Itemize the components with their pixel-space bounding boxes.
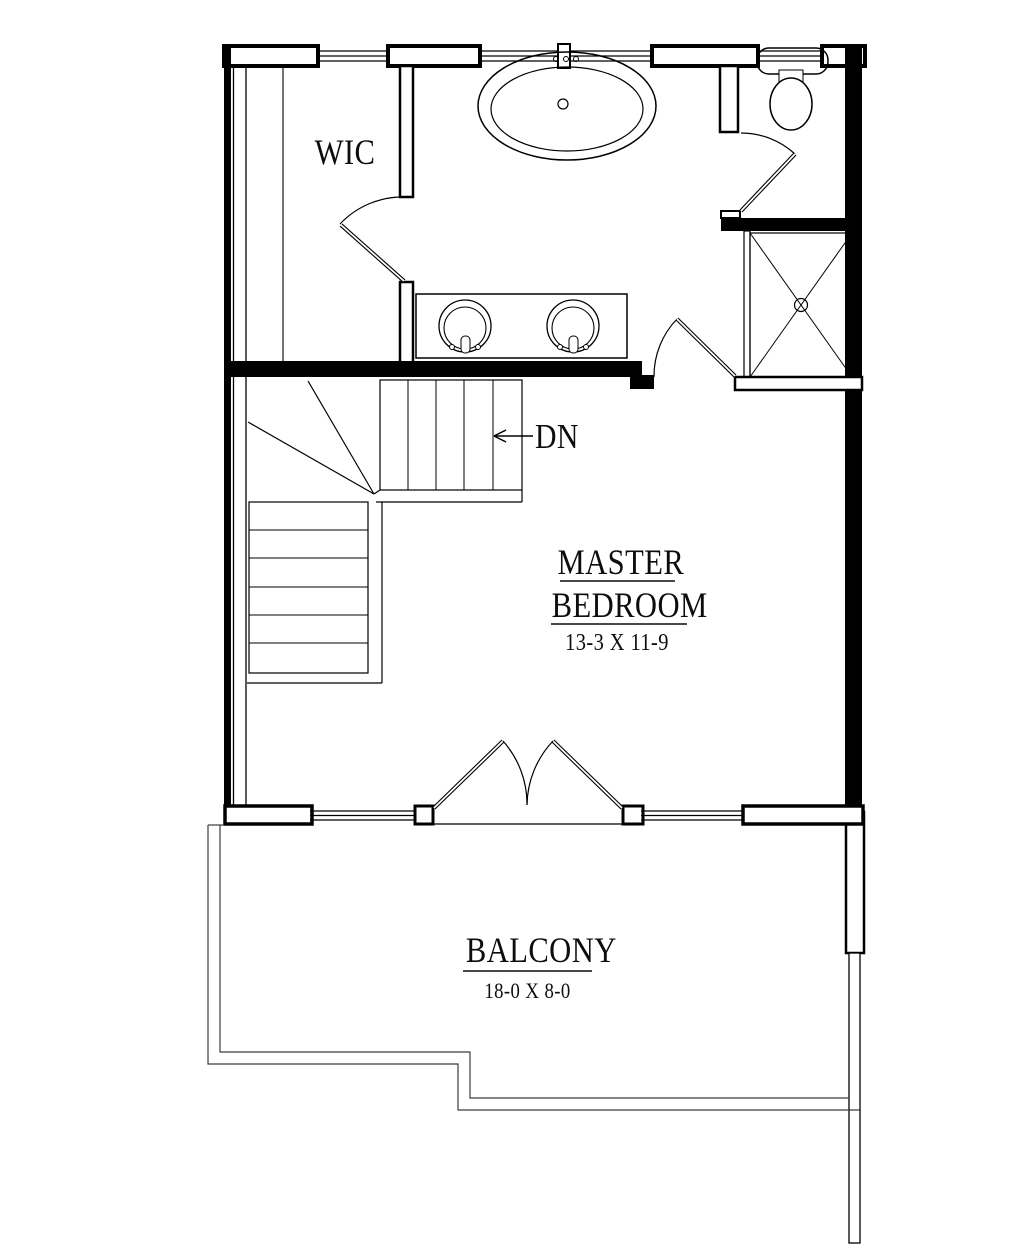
floor-plan: WIC DN MASTER BEDROOM 13-3 X 11-9 BALCON… — [0, 0, 1023, 1245]
fixtures — [416, 48, 852, 377]
floor-plan-linework — [0, 0, 1023, 1245]
window-mullion — [558, 44, 570, 68]
shower-icon — [744, 231, 852, 377]
balcony-label: BALCONY — [466, 932, 589, 968]
window-bottom-2 — [641, 811, 745, 820]
wic-wall-lower — [400, 282, 413, 363]
master-bedroom-dimensions: 13-3 X 11-9 — [558, 631, 677, 655]
balcony-dimensions: 18-0 X 8-0 — [466, 980, 589, 1002]
main-divider-wall — [224, 361, 642, 377]
window-bottom-1 — [310, 811, 417, 820]
master-bedroom-label-line2: BEDROOM — [552, 587, 684, 623]
vanity-icon — [416, 294, 627, 358]
french-doors — [434, 741, 622, 808]
shower-bottom-wall — [735, 377, 862, 390]
sink-right-icon — [547, 300, 599, 353]
sink-left-icon — [439, 300, 491, 353]
window-top-1 — [316, 51, 390, 61]
wic-room-label: WIC — [303, 134, 388, 170]
toilet-shower-wall — [721, 218, 862, 231]
staircase — [247, 380, 533, 683]
toilet-door-jamb — [721, 211, 740, 218]
wic-door — [340, 197, 404, 281]
toilet-icon — [757, 48, 828, 130]
toilet-door — [741, 133, 795, 211]
window-top-3 — [756, 51, 824, 61]
wic-wall-upper — [400, 66, 413, 197]
master-bedroom-label-line1: MASTER — [558, 544, 677, 580]
interior-walls — [224, 66, 862, 390]
toilet-room-wall — [720, 66, 738, 132]
stair-direction-label: DN — [535, 419, 579, 454]
divider-jog — [630, 375, 654, 389]
bathroom-door — [654, 319, 735, 377]
